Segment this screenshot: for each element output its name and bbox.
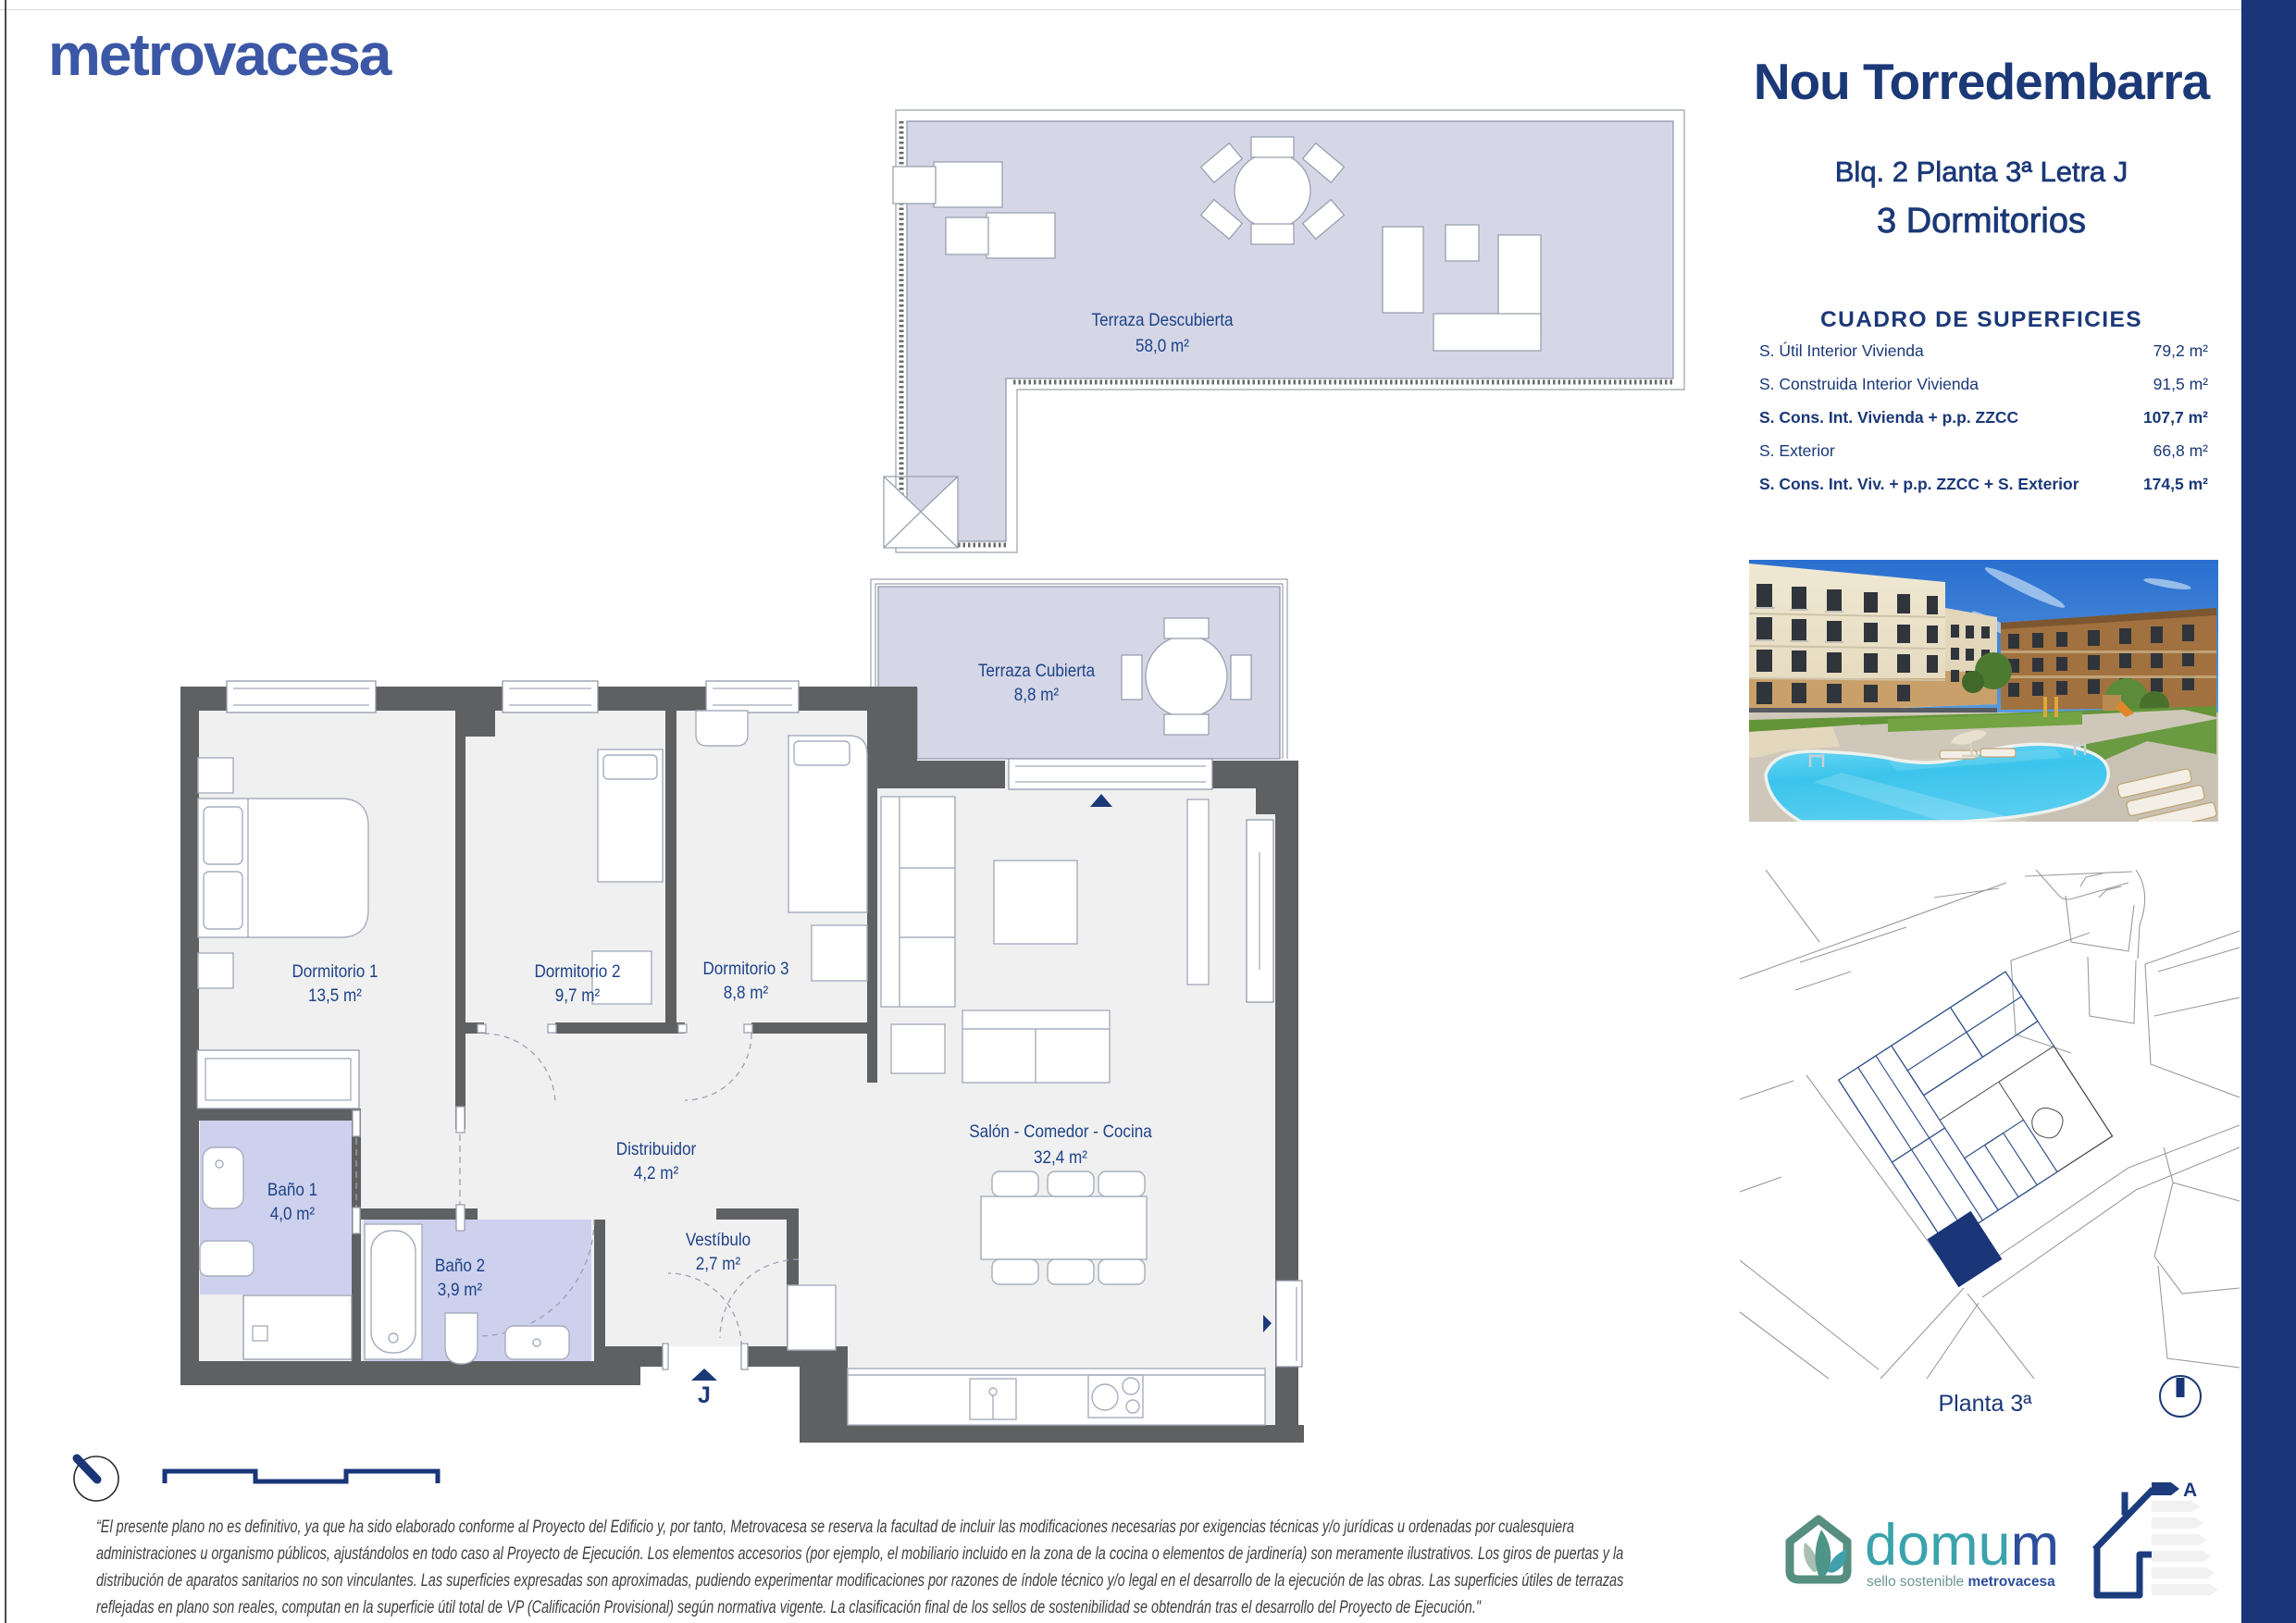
svg-text:sello sostenible metrovacesa: sello sostenible metrovacesa — [1867, 1574, 2055, 1590]
svg-text:32,4 m²: 32,4 m² — [1034, 1147, 1087, 1167]
svg-text:Terraza Descubierta: Terraza Descubierta — [1092, 310, 1235, 329]
svg-text:13,5 m²: 13,5 m² — [308, 985, 362, 1005]
svg-text:58,0 m²: 58,0 m² — [1136, 336, 1189, 355]
svg-text:Terraza Cubierta: Terraza Cubierta — [978, 661, 1096, 680]
svg-text:J: J — [698, 1382, 711, 1408]
svg-text:4,2 m²: 4,2 m² — [634, 1163, 678, 1183]
svg-text:8,8 m²: 8,8 m² — [1014, 685, 1059, 704]
svg-text:2,7 m²: 2,7 m² — [696, 1254, 740, 1273]
svg-text:Baño 1: Baño 1 — [267, 1180, 317, 1199]
svg-text:Distribuidor: Distribuidor — [616, 1139, 696, 1158]
svg-text:Salón - Comedor - Cocina: Salón - Comedor - Cocina — [969, 1121, 1152, 1141]
svg-text:A: A — [2183, 1480, 2197, 1501]
svg-text:3,9 m²: 3,9 m² — [438, 1280, 482, 1299]
svg-text:Vestíbulo: Vestíbulo — [686, 1230, 751, 1249]
svg-text:9,7 m²: 9,7 m² — [555, 985, 600, 1005]
svg-text:8,8 m²: 8,8 m² — [724, 983, 768, 1002]
svg-text:Baño 2: Baño 2 — [435, 1256, 485, 1275]
svg-text:Dormitorio 3: Dormitorio 3 — [702, 959, 788, 978]
svg-text:Dormitorio 2: Dormitorio 2 — [534, 961, 620, 981]
svg-text:4,0 m²: 4,0 m² — [270, 1204, 315, 1223]
svg-text:Dormitorio 1: Dormitorio 1 — [292, 961, 378, 981]
svg-text:domum: domum — [1865, 1513, 2059, 1578]
